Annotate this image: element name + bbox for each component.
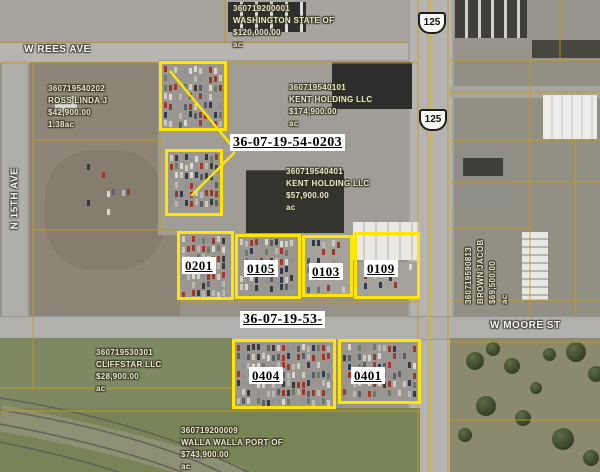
- street-label-15th: N 15TH AVE: [10, 164, 21, 234]
- parcel-acres: ac: [499, 230, 511, 304]
- building-right-white: [543, 95, 597, 139]
- parcel-acres: ac: [286, 202, 369, 214]
- parcel-label-0401: 0401: [351, 367, 385, 384]
- car: [87, 200, 90, 206]
- annotation-cliffstar: 360719530301 CLIFFSTAR LLC $28,900.00 ac: [96, 347, 162, 395]
- building-right-dark: [532, 40, 600, 58]
- tree-icon: [515, 410, 531, 426]
- tree-icon: [476, 396, 496, 416]
- parcel-id: 360719540101: [289, 82, 372, 94]
- parcel-highlight-0404[interactable]: [232, 339, 336, 409]
- annotation-brown: 360719590813 BROWN JACOB $69,500.00 ac: [463, 230, 511, 304]
- tree-icon: [552, 428, 574, 450]
- tree-icon: [583, 450, 599, 466]
- tree-icon: [588, 366, 600, 382]
- parcel-id: 360719200009: [181, 425, 283, 437]
- car: [107, 209, 110, 215]
- pavement-top: [0, 0, 410, 44]
- parcel-value: $28,900.00: [96, 371, 162, 383]
- parcel-highlight-0203-north[interactable]: [159, 61, 227, 131]
- parcel-owner: CLIFFSTAR LLC: [96, 359, 162, 371]
- parcel-value: $42,900.00: [48, 107, 107, 119]
- annotation-port: 360719200009 WALLA WALLA PORT OF $743,90…: [181, 425, 283, 472]
- junk-scatter: [55, 160, 155, 215]
- parcel-value: $57,900.00: [286, 190, 369, 202]
- parcel-owner: WASHINGTON STATE OF: [233, 15, 334, 27]
- parcel-highlight-0203-south[interactable]: [165, 149, 223, 216]
- parcel-owner: ROSS LINDA J: [48, 95, 107, 107]
- parcel-value: $174,900.00: [289, 106, 372, 118]
- parcel-id: 360719540202: [48, 83, 107, 95]
- annotation-ross: 360719540202 ROSS LINDA J $42,900.00 1.3…: [48, 83, 107, 131]
- route-125-shield-south: 125: [419, 109, 447, 131]
- parcel-value: $69,500.00: [487, 230, 499, 304]
- tree-icon: [466, 352, 484, 370]
- tree-icon: [566, 342, 586, 362]
- parcel-id: 360719590813: [463, 230, 475, 304]
- car: [87, 164, 90, 170]
- car: [107, 191, 110, 197]
- car: [122, 190, 125, 196]
- parcel-owner: WALLA WALLA PORT OF: [181, 437, 283, 449]
- map-canvas[interactable]: 36-07-19-54-0203 0201 0105 0103 0109 36-…: [0, 0, 600, 472]
- parcel-owner: KENT HOLDING LLC: [286, 178, 369, 190]
- parcel-id: 360719530301: [96, 347, 162, 359]
- parcel-value: $120,000.00: [233, 27, 334, 39]
- tree-icon: [530, 382, 542, 394]
- parcel-acres: 1.38ac: [48, 119, 107, 131]
- parcel-label-0201: 0201: [182, 257, 216, 274]
- tree-icon: [504, 358, 520, 374]
- parcel-value: $743,900.00: [181, 449, 283, 461]
- shed-roof-dark: [463, 158, 503, 176]
- annotation-kent-south: 360719540401 KENT HOLDING LLC $57,900.00…: [286, 166, 369, 214]
- parcel-acres: ac: [289, 118, 372, 130]
- trailer-column-right: [522, 232, 548, 300]
- annotation-kent-north: 360719540101 KENT HOLDING LLC $174,900.0…: [289, 82, 372, 130]
- parcel-owner: KENT HOLDING LLC: [289, 94, 372, 106]
- parcel-label-sec53: 36-07-19-53-: [240, 311, 325, 328]
- parcel-label-0109: 0109: [364, 260, 398, 277]
- car: [112, 189, 115, 195]
- parcel-label-0103: 0103: [309, 263, 343, 280]
- parcel-id: 360719200001: [233, 3, 334, 15]
- car: [102, 172, 105, 178]
- tree-icon: [458, 428, 472, 442]
- parcel-label-0105: 0105: [244, 260, 278, 277]
- parcel-acres: ac: [96, 383, 162, 395]
- parcel-owner: BROWN JACOB: [475, 230, 487, 304]
- tree-icon: [543, 348, 556, 361]
- route-125-shield-north: 125: [418, 12, 446, 34]
- tree-icon: [486, 342, 500, 356]
- parcel-label-sec54: 36-07-19-54-0203: [230, 134, 345, 151]
- trailer-row-top-right: [455, 0, 527, 38]
- parcel-acres: ac: [233, 39, 334, 51]
- parcel-label-0404: 0404: [249, 367, 283, 384]
- annotation-washington: 360719200001 WASHINGTON STATE OF $120,00…: [233, 3, 334, 51]
- car: [127, 189, 130, 195]
- parcel-acres: ac: [181, 461, 283, 472]
- street-label-moore: W MOORE ST: [490, 320, 561, 331]
- street-label-rees: W REES AVE: [24, 44, 91, 55]
- parcel-id: 360719540401: [286, 166, 369, 178]
